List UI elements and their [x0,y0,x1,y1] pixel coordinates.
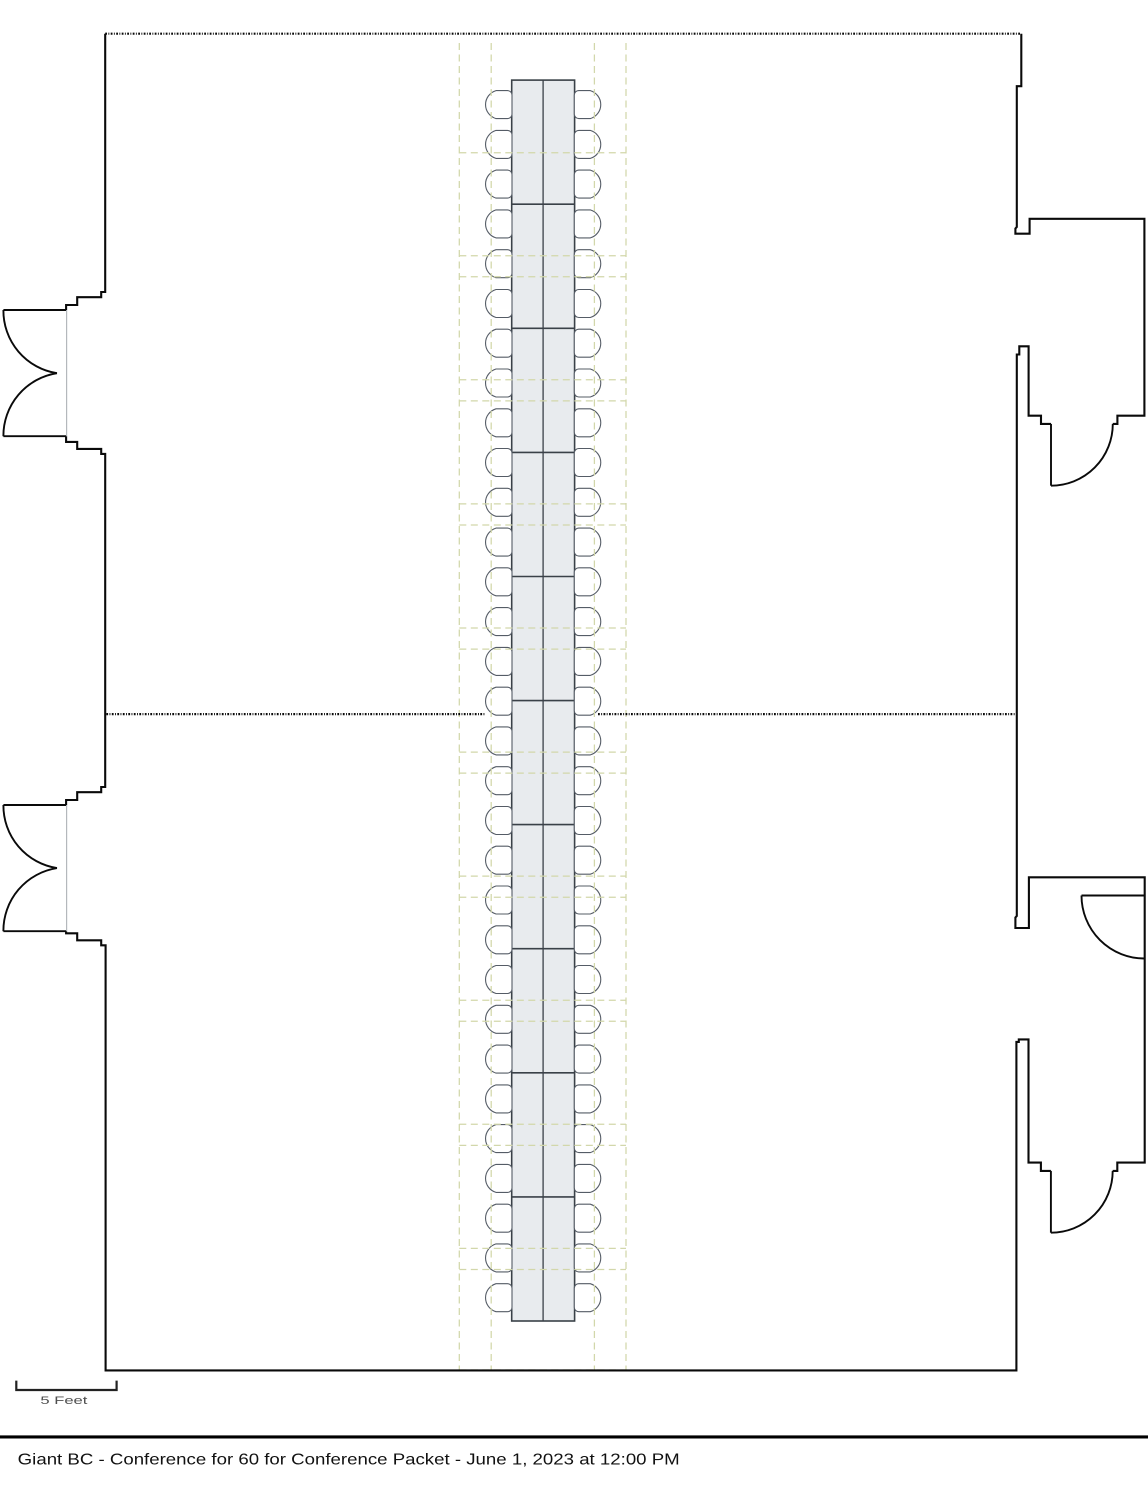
svg-text:Giant BC - Conference for 60 f: Giant BC - Conference for 60 for Confere… [18,1452,680,1469]
svg-text:5 Feet: 5 Feet [40,1395,87,1407]
